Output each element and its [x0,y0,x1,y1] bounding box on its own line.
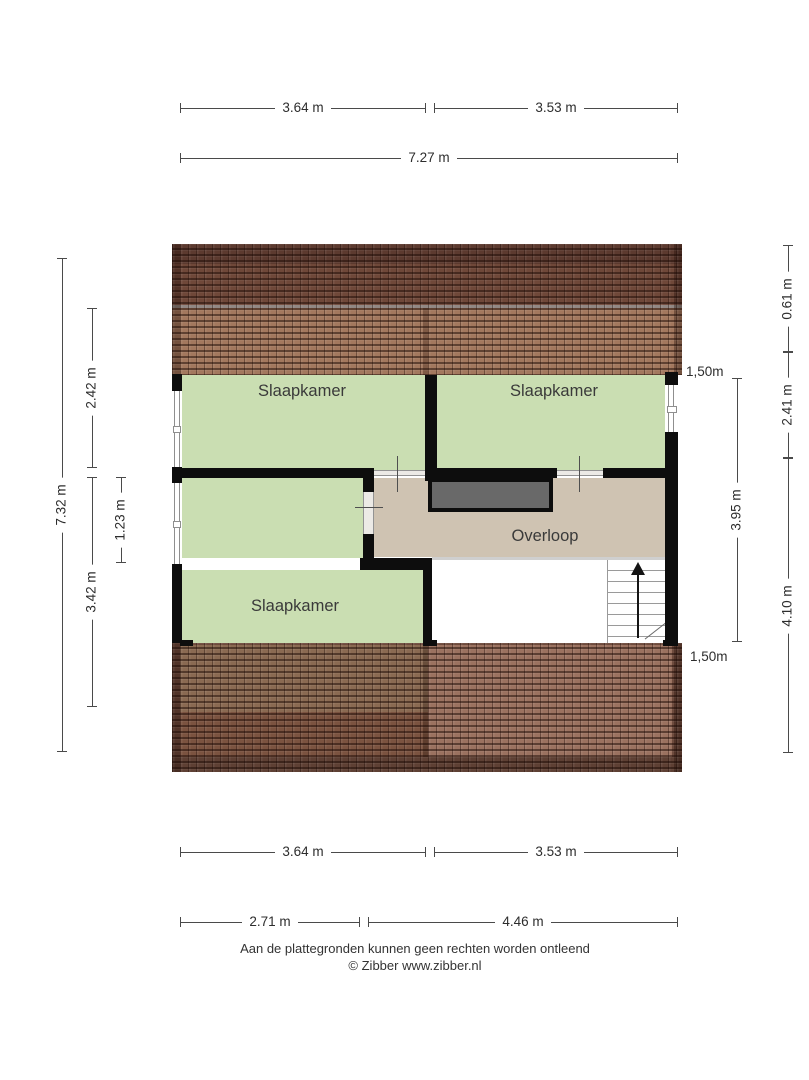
wall-left-top [172,374,182,391]
room-label-bedroom-top-right: Slaapkamer [469,380,639,402]
headroom-label-bottom: 1,50m [690,649,728,664]
dim-right-height-inner: 3.95 m [729,378,745,642]
dim-left-height-total: 7.32 m [54,258,70,752]
wall-door-post-upper [363,468,374,492]
window-right-top [666,385,678,432]
wall-horizontal-mid [437,468,557,478]
roof-bottom [172,643,682,772]
dim-right-height-bottom: 4.10 m [780,458,796,753]
dim-label: 3.95 m [729,482,745,537]
floorplan-page: 3.64 m 3.53 m 7.27 m 7.32 m 2.42 m 1.23 … [0,0,809,1080]
closet-block [428,478,553,512]
wall-stub-mid [423,640,437,646]
door-tick-top-left [397,456,398,492]
dim-label: 2.41 m [780,377,796,432]
room-label-bedroom-top-left: Slaapkamer [217,380,387,402]
room-bedroom-bottom-left-upper [182,478,363,558]
dim-top-width-right: 3.53 m [434,100,678,116]
headroom-label-top: 1,50m [686,364,724,379]
dim-top-width-left: 3.64 m [180,100,426,116]
roof-tile-pattern [172,643,682,772]
wall-horizontal-left [172,468,365,478]
dim-label: 3.64 m [275,844,330,860]
dim-bottom-width-left: 3.64 m [180,844,426,860]
roof-tile-pattern [172,244,682,375]
dim-label: 7.32 m [54,477,70,532]
window-left-bottom [172,483,182,564]
dim-label: 7.27 m [401,150,456,166]
wall-right-top-block [665,372,678,385]
roof-top [172,244,682,375]
dim-top-width-total: 7.27 m [180,150,678,166]
room-label-bedroom-bottom-left: Slaapkamer [210,595,380,617]
wall-stub-left [180,640,193,646]
dim-right-height-top: 2.41 m [780,352,796,458]
wall-door-post-lower [363,534,374,560]
door-opening-top-left [374,470,425,476]
door-opening-bottom-left-room [363,492,374,534]
wall-left-bottom [172,564,182,645]
wall-stub-right [663,640,678,646]
footer-credit: © Zibber www.zibber.nl [95,958,735,973]
dim-label: 4.10 m [780,578,796,633]
room-label-landing: Overloop [460,525,630,547]
dim-label: 3.53 m [528,844,583,860]
dim-bottom-width-left2: 2.71 m [180,914,360,930]
dim-label: 0.61 m [780,271,796,326]
floorplan-canvas: Slaapkamer Slaapkamer Slaapkamer Overloo… [172,244,682,772]
dim-left-height-bottom: 3.42 m [84,477,100,707]
dim-label: 2.71 m [242,914,297,930]
wall-right-main [665,432,678,644]
wall-step [360,558,432,570]
footer-disclaimer: Aan de plattegronden kunnen geen rechten… [95,941,735,956]
stair-direction-arrow-shaft [637,574,639,638]
dim-label: 3.53 m [528,100,583,116]
dim-bottom-width-right: 3.53 m [434,844,678,860]
door-tick-bottom-left-room [355,507,383,508]
wall-stairwell-left [423,570,432,645]
dim-label: 3.42 m [84,564,100,619]
wall-divider-top-rooms [425,375,437,481]
dim-label: 3.64 m [275,100,330,116]
door-opening-top-right [557,470,603,476]
window-left-top [172,391,182,467]
dim-bottom-width-right2: 4.46 m [368,914,678,930]
dim-label: 4.46 m [495,914,550,930]
wall-horizontal-right [603,468,665,478]
dim-label: 1.23 m [113,492,129,547]
dim-left-height-inner: 1.23 m [113,477,129,563]
dim-right-height-ridge: 0.61 m [780,245,796,352]
dim-label: 2.42 m [84,360,100,415]
dim-left-height-top: 2.42 m [84,308,100,468]
door-tick-top-right [579,456,580,492]
